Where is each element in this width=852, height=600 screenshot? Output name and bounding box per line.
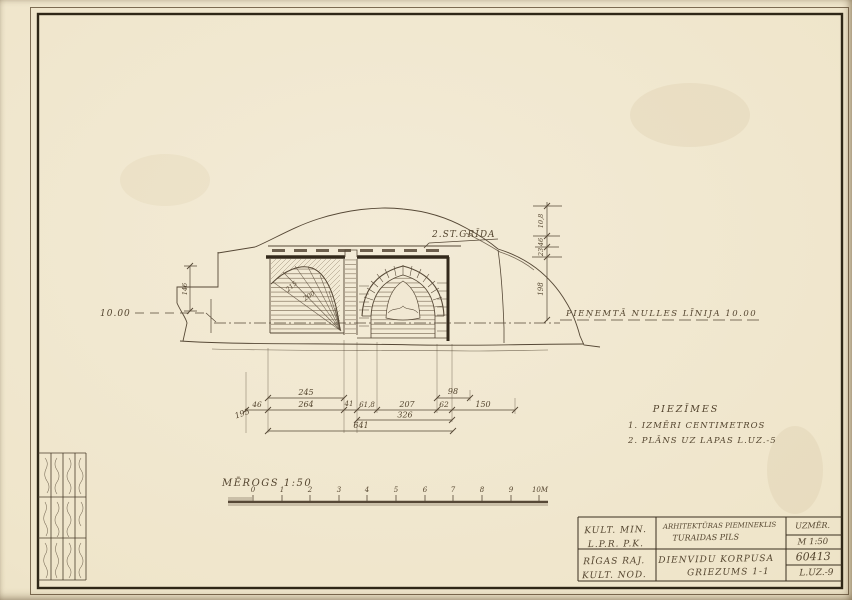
scale-tick-label: 6	[423, 486, 428, 494]
dim-value: 195	[233, 407, 250, 421]
scale-tick-label: 1	[280, 486, 284, 494]
scale-tick-label: 5	[394, 486, 399, 494]
vertical-dimension-chain: 10,8 46 23 198	[532, 202, 562, 323]
v-dim-value: 198	[537, 282, 545, 296]
ground-line-2	[212, 349, 548, 351]
left-height-value: 146	[181, 283, 189, 295]
monument-title: ARHITEKTŪRAS PIEMINEKLIS	[662, 520, 777, 531]
scale-tick-label: 9	[509, 486, 514, 494]
scale-tick-label: 3	[337, 486, 342, 494]
org-name: L.P.R. P.K.	[587, 539, 644, 550]
dim-value: 150	[475, 400, 490, 409]
scale-tick-label: 10M	[532, 486, 549, 494]
sheet-number: L.UZ.-9	[798, 568, 834, 579]
measure-type: UZMĒR.	[795, 521, 830, 531]
blueprint-svg: 2.ST.GRĪDA 215 200 10.00	[0, 0, 852, 600]
dim-value: 207	[398, 400, 415, 409]
left-top-link	[218, 247, 255, 253]
ground-line	[180, 341, 584, 345]
center-pillar	[344, 259, 357, 335]
right-slope-outline	[498, 249, 600, 347]
right-wall-inner-edge	[498, 250, 504, 343]
scale-label: MĒROGS 1:50	[221, 477, 312, 489]
monument-title: TURAIDAS PILS	[672, 532, 739, 542]
dim-value: 41	[344, 400, 354, 408]
stamp-table	[38, 453, 86, 580]
v-dim-value: 10,8	[537, 214, 545, 228]
notes-block: PIEZĪMES 1. IZMĒRI CENTIMETROS 2. PLĀNS …	[627, 403, 777, 446]
scale-tick-label: 8	[480, 486, 485, 494]
scale-bar: MĒROGS 1:50 0 1 2 3 4 5 6 7 8 9 10M	[221, 477, 549, 505]
zero-line-label: PIEŅEMTĀ NULLES LĪNIJA 10.00	[565, 307, 757, 319]
title-block-texts: KULT. MIN. L.P.R. P.K. RĪGAS RAJ. KULT. …	[580, 519, 834, 582]
dim-value: 62	[439, 400, 449, 409]
lintel-bars	[266, 250, 449, 257]
org-name: KULT. NOD.	[581, 570, 647, 581]
scale-tick-label: 2	[307, 486, 313, 494]
org-name: KULT. MIN.	[583, 525, 647, 536]
dim-value: 61,8	[359, 401, 375, 409]
left-height-dimension: 146	[181, 263, 197, 314]
dim-value: 641	[353, 421, 368, 430]
floor-label: 2.ST.GRĪDA	[431, 228, 496, 240]
dim-value: 264	[297, 400, 313, 409]
mound-top-outline	[255, 208, 498, 249]
left-step-outline	[177, 252, 218, 341]
dim-value: 98	[448, 387, 458, 396]
drawing-title: DIENVIDU KORPUSA	[657, 554, 774, 566]
notes-line: 1. IZMĒRI CENTIMETROS	[628, 419, 765, 431]
horizontal-dimension-chains: 245 98 46 264 41 61,8 207 62 150 326 195…	[233, 340, 518, 434]
scale-tick-label: 0	[251, 486, 256, 494]
floor-line: 2.ST.GRĪDA	[268, 228, 498, 251]
v-dim-value: 23	[537, 248, 545, 257]
v-dim-value: 46	[537, 238, 545, 247]
notes-line: 2. PLĀNS UZ LAPAS L.UZ.-5	[627, 434, 777, 446]
inventory-number: 60413	[796, 550, 831, 564]
dim-value: 245	[297, 388, 313, 397]
level-left-label: 10.00	[100, 309, 131, 319]
left-arch-opening: 215 200	[270, 259, 344, 333]
level-left-tick	[206, 299, 216, 333]
paper-stains	[120, 83, 823, 514]
scale-tick-label: 7	[451, 486, 456, 494]
notes-title: PIEZĪMES	[652, 403, 720, 415]
drawing-title: GRIEZUMS 1-1	[687, 567, 770, 578]
extension-lines	[246, 340, 515, 433]
right-arch-opening	[357, 257, 448, 341]
org-name: RĪGAS RAJ.	[582, 554, 645, 567]
dim-value: 326	[397, 411, 412, 420]
drawing-sheet: 2.ST.GRĪDA 215 200 10.00	[0, 0, 852, 600]
title-block: KULT. MIN. L.P.R. P.K. RĪGAS RAJ. KULT. …	[578, 517, 842, 582]
scale-tick-label: 4	[364, 486, 369, 494]
dim-value: 46	[251, 400, 262, 409]
scale-value: M 1:50	[797, 537, 829, 548]
